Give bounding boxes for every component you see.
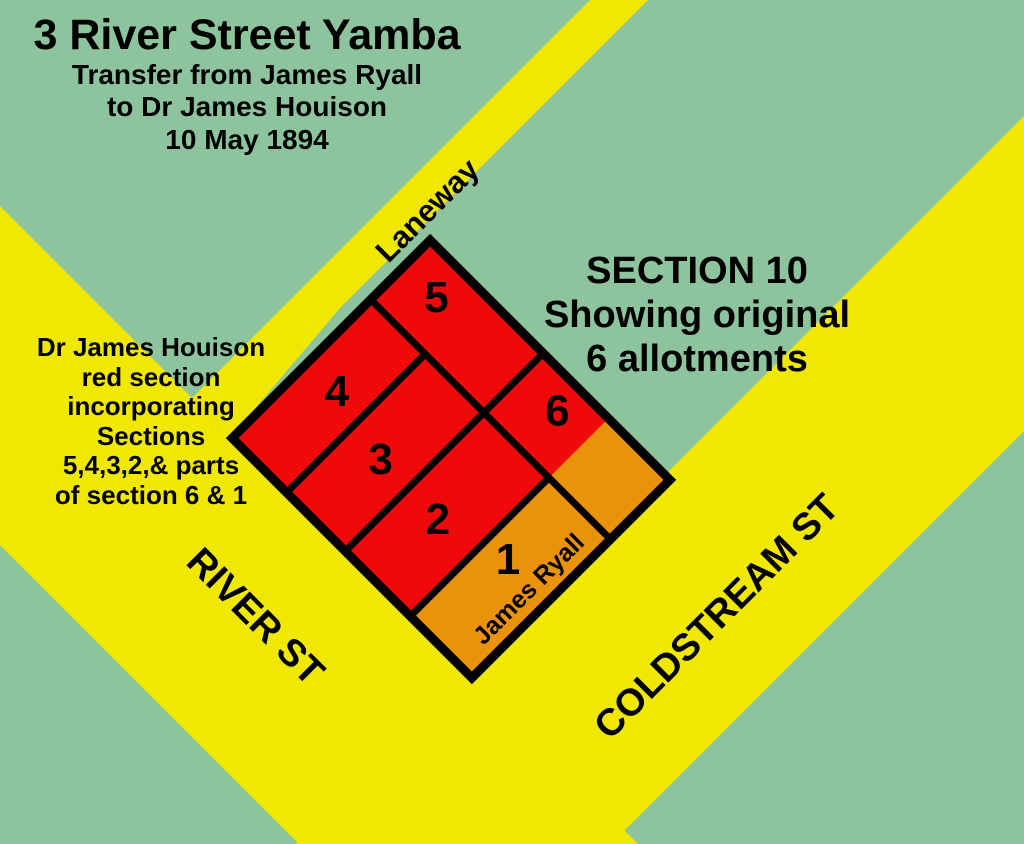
allotment-1-label: 1 xyxy=(496,535,520,584)
houison-note-line-5: 5,4,3,2,& parts xyxy=(63,450,239,480)
allotment-2-label: 2 xyxy=(426,495,450,544)
houison-note-line-6: of section 6 & 1 xyxy=(55,480,247,510)
houison-note-line-1: Dr James Houison xyxy=(37,332,265,362)
allotment-5-label: 5 xyxy=(424,273,448,322)
map-subtitle-recipient: to Dr James Houison xyxy=(107,91,387,122)
yamba-land-transfer-map: 4 5 3 2 6 1 James Ryall Laneway RIVER ST… xyxy=(0,0,1024,844)
section-note-line-1: SECTION 10 xyxy=(586,250,808,292)
houison-note-line-4: Sections xyxy=(97,421,205,451)
map-title: 3 River Street Yamba xyxy=(33,11,461,59)
section-note-line-2: Showing original xyxy=(544,294,850,336)
houison-note-line-3: incorporating xyxy=(67,391,235,421)
houison-note-line-2: red section xyxy=(82,362,221,392)
map-canvas: 4 5 3 2 6 1 James Ryall Laneway RIVER ST… xyxy=(0,0,1024,844)
allotment-4-label: 4 xyxy=(325,367,350,416)
map-subtitle-date: 10 May 1894 xyxy=(165,124,329,155)
allotment-3-label: 3 xyxy=(368,435,392,484)
section-10-annotation: SECTION 10 Showing original 6 allotments xyxy=(544,250,850,380)
section-note-line-3: 6 allotments xyxy=(586,338,808,380)
map-subtitle-transfer: Transfer from James Ryall xyxy=(72,59,422,90)
allotment-6-label: 6 xyxy=(545,387,569,436)
